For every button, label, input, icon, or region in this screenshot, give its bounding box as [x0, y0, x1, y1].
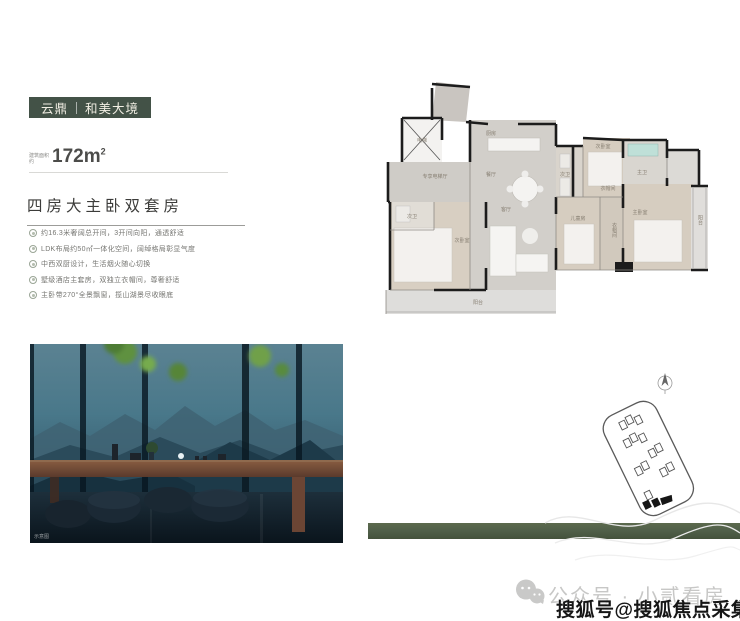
- area-number: 172m: [52, 146, 101, 167]
- feature-text: LDK布局约50㎡一体化空间，阔绰格局彰显气度: [41, 244, 195, 254]
- room-label-master-bath: 主卫: [637, 169, 647, 176]
- lifestyle-photo: 示意图: [30, 344, 343, 543]
- room-label-elevator: 电梯: [417, 137, 427, 144]
- feature-bullet-icon: [29, 291, 37, 299]
- area-prefix-label: 建筑面积 约: [29, 154, 49, 168]
- feature-text: 墅级酒店主套房，双独立衣帽间，尊奢舒适: [41, 275, 180, 285]
- room-label-master-bedroom: 主卧室: [632, 209, 647, 216]
- headline: 四房大主卧双套房: [27, 194, 245, 226]
- brand-name-left: 云鼎: [41, 98, 68, 117]
- feature-bullet-icon: [29, 245, 37, 253]
- wechat-icon: [514, 579, 546, 606]
- feature-text: 主卧带270°全景飘窗，揽山湖景尽收眼底: [41, 290, 173, 300]
- feature-bullet-icon: [29, 276, 37, 284]
- photo-caption: 示意图: [34, 533, 49, 540]
- room-label-kitchen: 厨房: [486, 130, 496, 137]
- room-label-kids-room: 儿童房: [570, 215, 585, 222]
- room-label-balcony: 阳台: [473, 299, 483, 306]
- room-label-cloak1: 衣帽间: [600, 185, 615, 192]
- room-label-bath2: 次卫: [407, 213, 417, 220]
- feature-list: 约16.3米奢阔总开间，3开间向阳，通透舒适 LDK布局约50㎡一体化空间，阔绰…: [29, 228, 259, 300]
- brand-badge: 云鼎 和美大境: [29, 97, 151, 118]
- floor-plan: 电梯 专享电梯厅 厨房 餐厅 客厅 次卫 次卧室 阳台 次卫 次卧室 主卫 衣帽…: [378, 78, 712, 326]
- room-label-elevator-hall: 专享电梯厅: [422, 173, 447, 180]
- feature-item: 墅级酒店主套房，双独立衣帽间，尊奢舒适: [29, 275, 259, 285]
- compass-icon: [658, 373, 672, 394]
- area-superscript: 2: [101, 147, 106, 157]
- room-label-dining: 餐厅: [486, 171, 496, 178]
- brand-name-right: 和美大境: [85, 98, 139, 117]
- feature-item: 主卧带270°全景飘窗，揽山湖景尽收眼底: [29, 290, 259, 300]
- feature-text: 中西双厨设计，生活烟火随心切换: [41, 259, 151, 269]
- area-prefix-bottom: 约: [29, 160, 49, 166]
- room-label-bedroom2: 次卧室: [454, 237, 469, 244]
- feature-text: 约16.3米奢阔总开间，3开间向阳，通透舒适: [41, 228, 184, 238]
- room-label-cloak2: 衣帽间: [611, 222, 617, 239]
- photo-scene: [30, 344, 343, 543]
- feature-bullet-icon: [29, 260, 37, 268]
- site-plan: [595, 368, 713, 523]
- sohu-watermark: 搜狐号@搜狐焦点采集站: [556, 595, 740, 621]
- room-label-living: 客厅: [501, 206, 511, 213]
- room-label-bedroom3: 次卧室: [595, 143, 610, 150]
- feature-item: LDK布局约50㎡一体化空间，阔绰格局彰显气度: [29, 244, 259, 254]
- badge-divider: [76, 102, 77, 114]
- feature-bullet-icon: [29, 229, 37, 237]
- area-value: 172m2: [52, 146, 106, 168]
- room-label-side-balcony: 阳台: [697, 214, 703, 226]
- feature-item: 中西双厨设计，生活烟火随心切换: [29, 259, 259, 269]
- feature-item: 约16.3米奢阔总开间，3开间向阳，通透舒适: [29, 228, 259, 238]
- room-label-bath3: 次卫: [560, 171, 570, 178]
- area-row: 建筑面积 约 172m2: [29, 146, 228, 173]
- brochure-page: 云鼎 和美大境 建筑面积 约 172m2 四房大主卧双套房 约16.3米奢阔总开…: [0, 0, 740, 621]
